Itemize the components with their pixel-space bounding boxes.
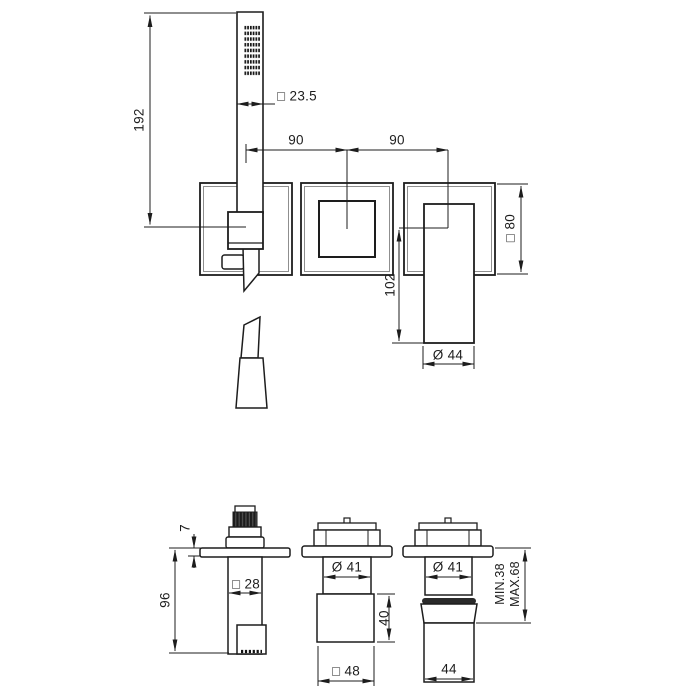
holder-flange — [200, 548, 290, 557]
valve-body-mid — [317, 594, 374, 642]
hose-outlet — [243, 247, 259, 291]
dim-depth-max: MAX.68 — [508, 561, 522, 607]
dim-body-height-mid: 40 — [377, 610, 391, 626]
dim-body-section-mid: □ 48 — [332, 664, 360, 678]
valve-round-side-view — [403, 518, 493, 682]
holder-outlet-block — [237, 625, 266, 654]
handshower-handle — [236, 317, 267, 408]
technical-drawing-page: 192 □ 23.5 90 90 □ 80 102 Ø 44 7 96 □ 28… — [0, 0, 700, 700]
dim-holder-projection: 96 — [158, 592, 172, 608]
dim-lever-diameter: Ø 44 — [433, 348, 463, 362]
dim-wall-depth-range: MIN.38 MAX.68 — [493, 561, 523, 607]
dim-depth-min: MIN.38 — [493, 563, 507, 605]
valve-flange-right — [403, 546, 493, 557]
dim-handshower-section: □ 23.5 — [277, 89, 317, 103]
dim-spacing-left: 90 — [288, 133, 304, 147]
dim-body-diameter-right: 44 — [441, 662, 457, 676]
side-views — [169, 506, 531, 686]
dim-holder-section: □ 28 — [232, 577, 260, 591]
spray-face — [244, 25, 260, 76]
shower-bracket — [228, 212, 263, 249]
hand-shower — [237, 12, 263, 214]
dim-neck-diameter-right: Ø 41 — [433, 560, 463, 574]
dim-flange-thickness: 7 — [178, 524, 192, 532]
valve-flange-mid — [302, 546, 392, 557]
front-view — [144, 12, 528, 408]
mixer-lever — [424, 204, 474, 343]
dim-shower-length: 192 — [132, 108, 146, 131]
dim-lever-length: 102 — [383, 273, 397, 296]
dim-spacing-right: 90 — [389, 133, 405, 147]
hose-clip — [222, 255, 244, 269]
dim-neck-diameter-mid: Ø 41 — [332, 560, 362, 574]
technical-drawing-canvas — [0, 0, 700, 700]
hose-thread — [233, 512, 257, 528]
dim-plate-size: □ 80 — [503, 214, 517, 242]
